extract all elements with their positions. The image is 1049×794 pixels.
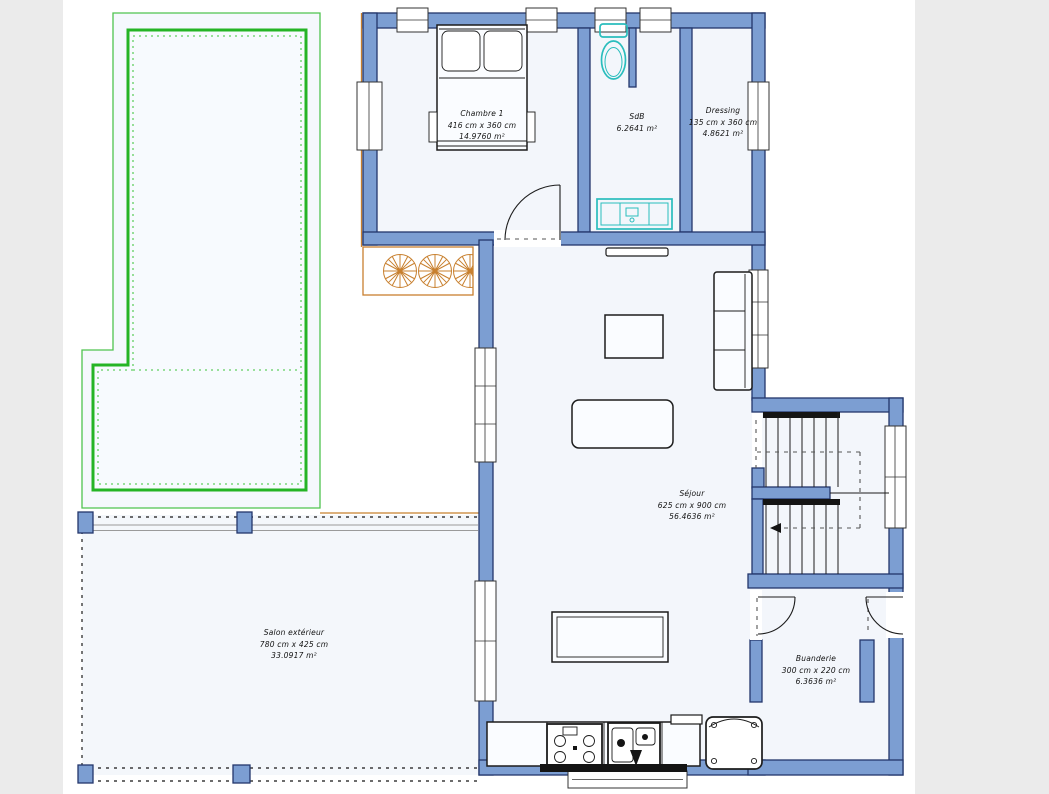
room-name: Salon extérieur: [219, 627, 369, 639]
room-area: 33.0917 m²: [219, 650, 369, 662]
floorplan-canvas[interactable]: Chambre 1 416 cm x 360 cm 14.9760 m² SdB…: [0, 0, 1049, 794]
room-name: Chambre 1: [407, 108, 557, 120]
room-name: Buanderie: [741, 653, 891, 665]
wall-buanderie-bottom[interactable]: [748, 760, 903, 775]
room-name: Séjour: [617, 488, 767, 500]
counter-tray[interactable]: [671, 715, 702, 724]
room-label-salon-exterieur[interactable]: Salon extérieur 780 cm x 425 cm 33.0917 …: [219, 627, 369, 662]
room-area: 4.8621 m²: [648, 128, 798, 140]
coffee-table[interactable]: [605, 315, 663, 358]
room-dimensions: 300 cm x 220 cm: [741, 665, 891, 677]
room-area: 56.4636 m²: [617, 511, 767, 523]
wall-middle-band[interactable]: [363, 232, 765, 245]
console-table[interactable]: [606, 248, 668, 256]
stove[interactable]: [547, 724, 602, 766]
room-dimensions: 780 cm x 425 cm: [219, 639, 369, 651]
kitchen-island[interactable]: [552, 612, 668, 662]
dishwasher[interactable]: [706, 717, 762, 769]
dining-table[interactable]: [572, 400, 673, 448]
sofa[interactable]: [714, 272, 752, 390]
window[interactable]: [357, 82, 382, 150]
room-name: Dressing: [648, 105, 798, 117]
window[interactable]: [526, 8, 557, 32]
window[interactable]: [475, 348, 496, 462]
window[interactable]: [568, 771, 687, 788]
pool[interactable]: [82, 13, 320, 508]
terrace-post[interactable]: [78, 765, 93, 783]
room-label-chambre1[interactable]: Chambre 1 416 cm x 360 cm 14.9760 m²: [407, 108, 557, 143]
window[interactable]: [640, 8, 671, 32]
kitchen-sink[interactable]: [608, 723, 660, 767]
room-area: 14.9760 m²: [407, 131, 557, 143]
room-label-dressing[interactable]: Dressing 135 cm x 360 cm 4.8621 m²: [648, 105, 798, 140]
room-dimensions: 625 cm x 900 cm: [617, 500, 767, 512]
room-label-buanderie[interactable]: Buanderie 300 cm x 220 cm 6.3636 m²: [741, 653, 891, 688]
terrace-post[interactable]: [78, 512, 93, 533]
terrace-post[interactable]: [237, 512, 252, 533]
room-dimensions: 135 cm x 360 cm: [648, 117, 798, 129]
terrace-post[interactable]: [233, 765, 250, 783]
window[interactable]: [397, 8, 428, 32]
wall-toilet-stub[interactable]: [629, 28, 636, 87]
counter-base-band: [540, 764, 687, 772]
window[interactable]: [475, 581, 496, 701]
room-area: 6.3636 m²: [741, 676, 891, 688]
wall-buanderie-top[interactable]: [748, 574, 903, 588]
room-dimensions: 416 cm x 360 cm: [407, 120, 557, 132]
window[interactable]: [885, 426, 906, 528]
wall-stair-top[interactable]: [752, 398, 903, 412]
wall-stub[interactable]: [752, 468, 764, 488]
room-label-sejour[interactable]: Séjour 625 cm x 900 cm 56.4636 m²: [617, 488, 767, 523]
